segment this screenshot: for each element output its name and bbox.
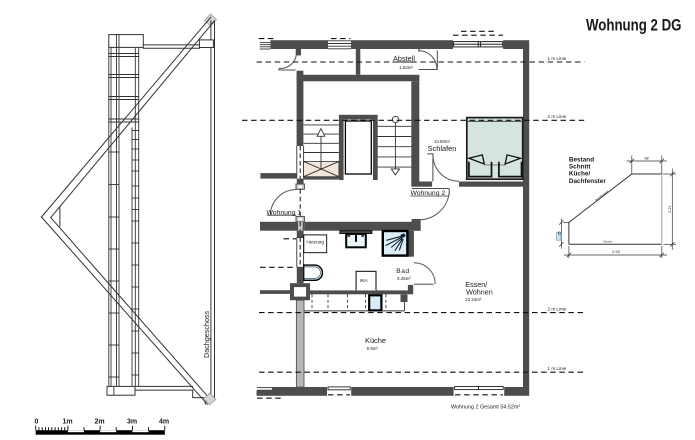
svg-text:85: 85 [557,231,561,235]
svg-text:Schlafen: Schlafen [428,144,457,153]
svg-text:Bestand: Bestand [569,156,594,163]
svg-text:Schnitt: Schnitt [569,163,592,170]
svg-text:1 m Linie: 1 m Linie [548,366,567,371]
svg-text:1.52m²: 1.52m² [399,65,413,70]
svg-text:2.21: 2.21 [668,205,672,212]
svg-text:Wohnung 2 Gesamt 54.52m²: Wohnung 2 Gesamt 54.52m² [451,404,520,410]
svg-text:1 m Linie: 1 m Linie [548,56,567,61]
svg-text:2m: 2m [94,419,104,426]
svg-text:Wohnung 2 DG: Wohnung 2 DG [586,16,681,35]
svg-text:9.9m²: 9.9m² [367,346,379,351]
svg-text:WA: WA [360,278,369,284]
svg-text:6.25m²: 6.25m² [397,276,411,281]
svg-text:98: 98 [644,156,648,160]
svg-text:Wohnung 1: Wohnung 1 [267,209,302,216]
svg-text:Dachgeschoss: Dachgeschoss [202,310,211,358]
svg-text:3m: 3m [127,419,137,426]
svg-text:2 m Linie: 2 m Linie [548,114,567,119]
svg-text:Küche/: Küche/ [569,171,591,178]
svg-text:1m: 1m [62,419,72,426]
svg-text:Bad: Bad [396,268,410,275]
svg-text:Heizung: Heizung [306,239,324,245]
svg-text:Dachfenster: Dachfenster [569,178,606,185]
svg-text:2 m Linie: 2 m Linie [548,306,567,311]
svg-text:4m: 4m [159,419,169,426]
svg-text:0: 0 [35,419,39,426]
svg-text:Küche: Küche [365,336,386,345]
svg-text:22.24m²: 22.24m² [465,297,482,302]
svg-text:Küche: Küche [604,240,613,244]
svg-text:Wohnen: Wohnen [466,288,493,297]
svg-text:2.93: 2.93 [612,250,619,254]
